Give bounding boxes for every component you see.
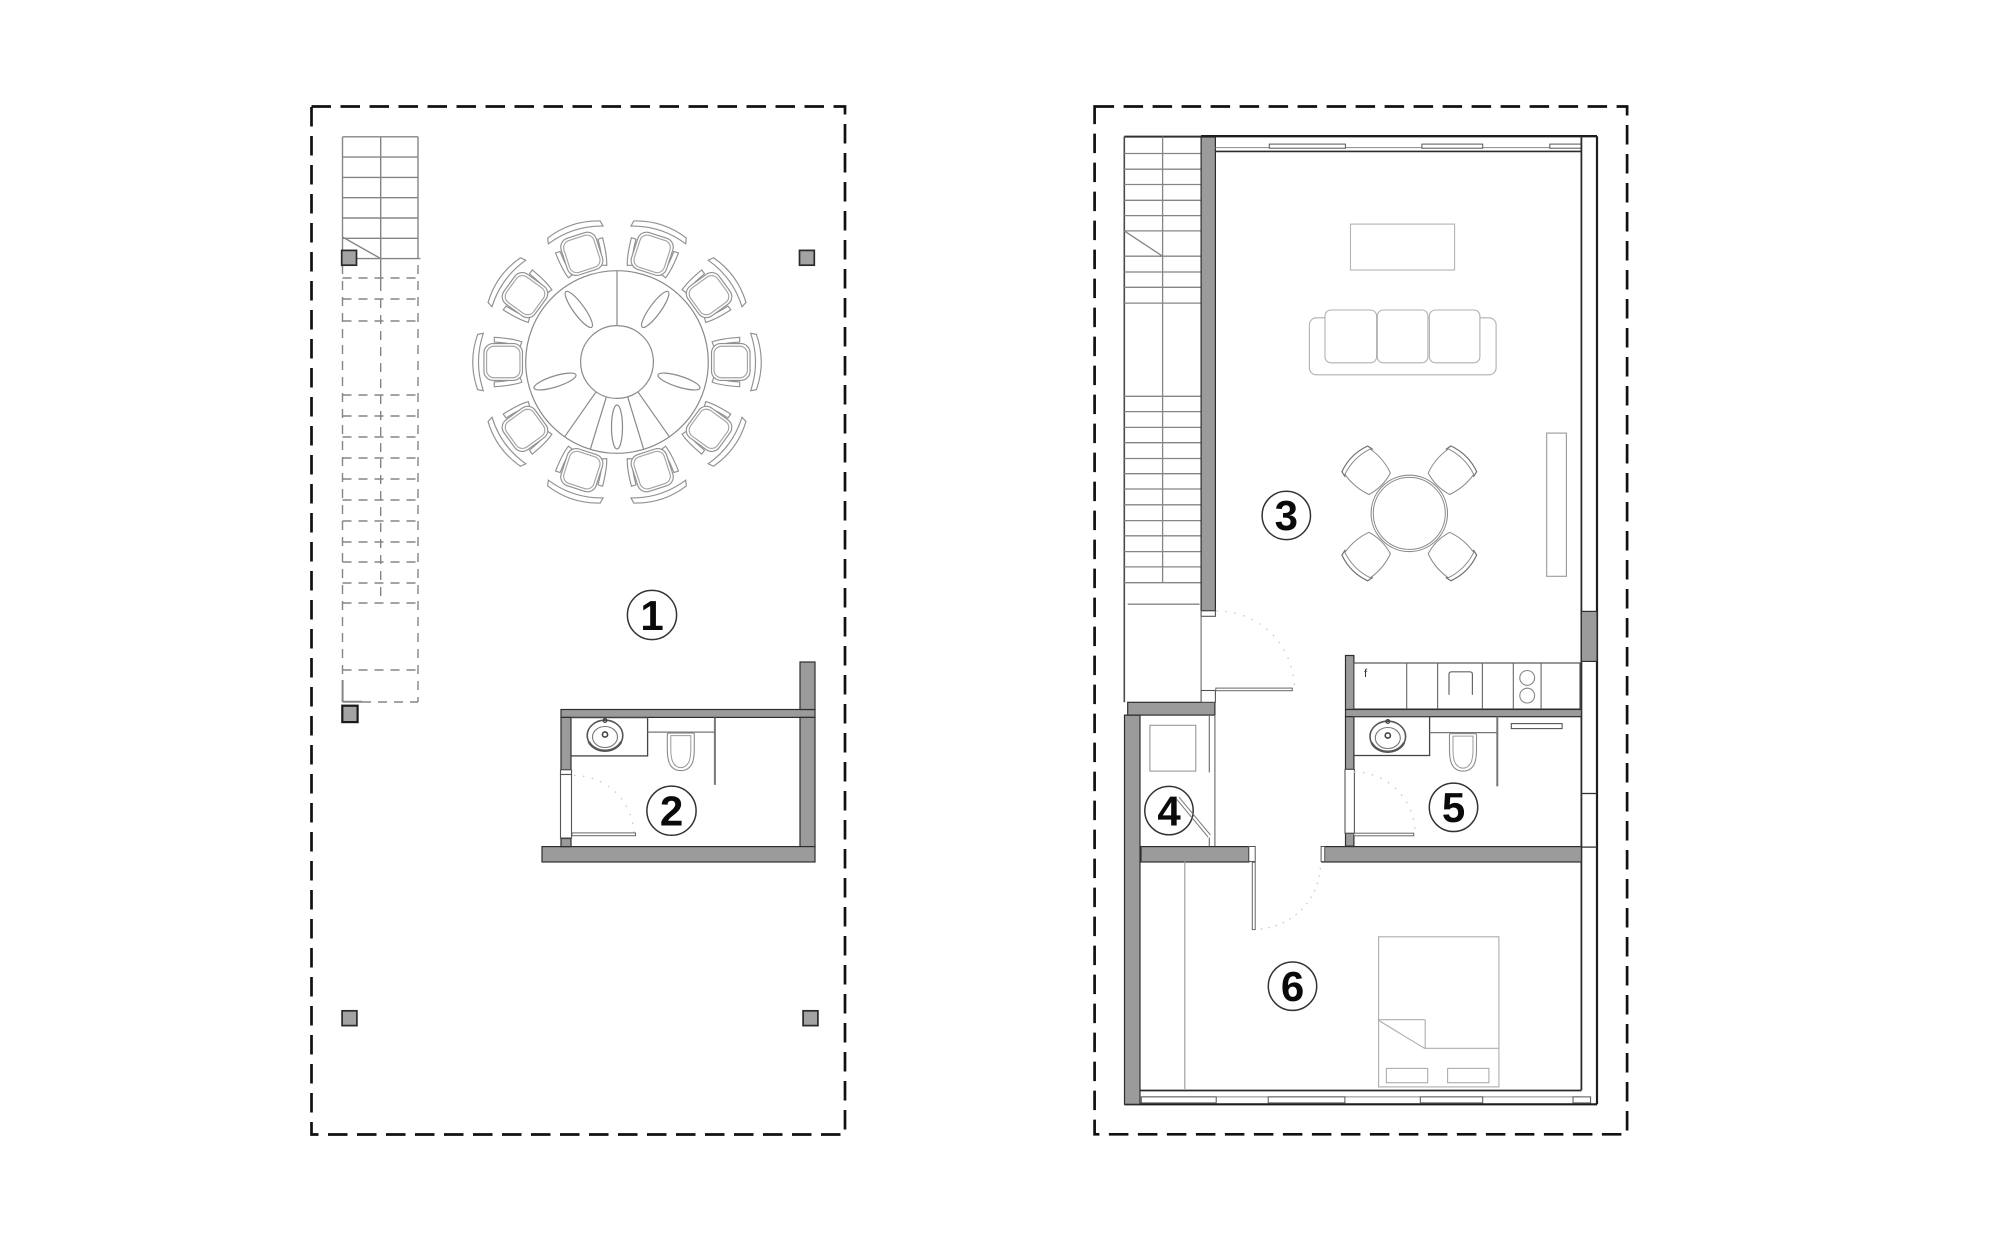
svg-text:3: 3 <box>1275 492 1298 539</box>
svg-text:4: 4 <box>1157 787 1181 834</box>
svg-text:5: 5 <box>1442 784 1465 831</box>
svg-text:1: 1 <box>640 592 663 639</box>
svg-text:6: 6 <box>1281 963 1304 1010</box>
svg-text:2: 2 <box>660 788 683 835</box>
